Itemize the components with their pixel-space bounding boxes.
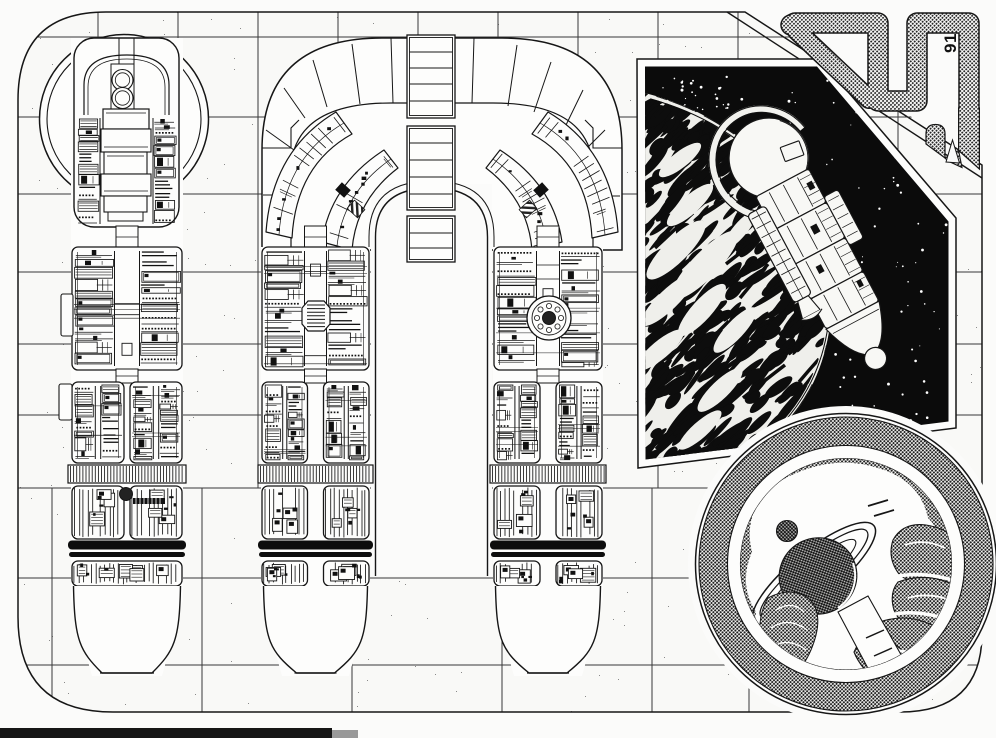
svg-text:91: 91 (941, 33, 960, 53)
